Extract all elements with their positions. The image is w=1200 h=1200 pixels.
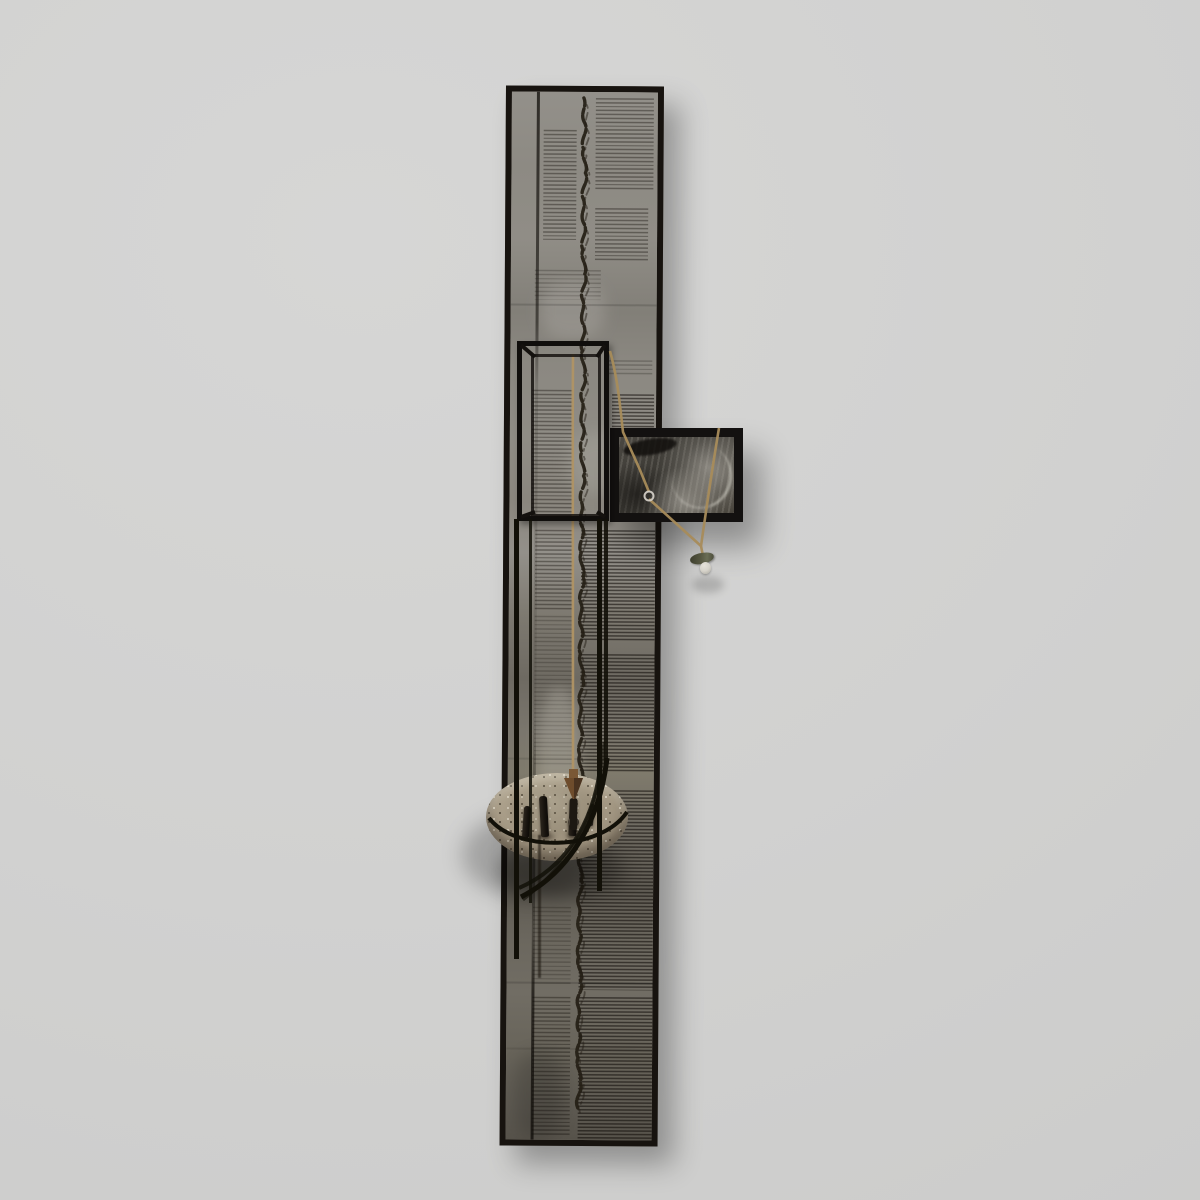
cage-corner-wires	[521, 345, 605, 517]
plumb-bob	[564, 769, 583, 830]
twine-strings	[610, 351, 719, 556]
wire-and-twine-overlay	[0, 0, 1200, 1200]
wire-bracket	[489, 742, 627, 900]
charm-white-bead	[700, 562, 711, 574]
charm-shadow	[692, 576, 724, 593]
